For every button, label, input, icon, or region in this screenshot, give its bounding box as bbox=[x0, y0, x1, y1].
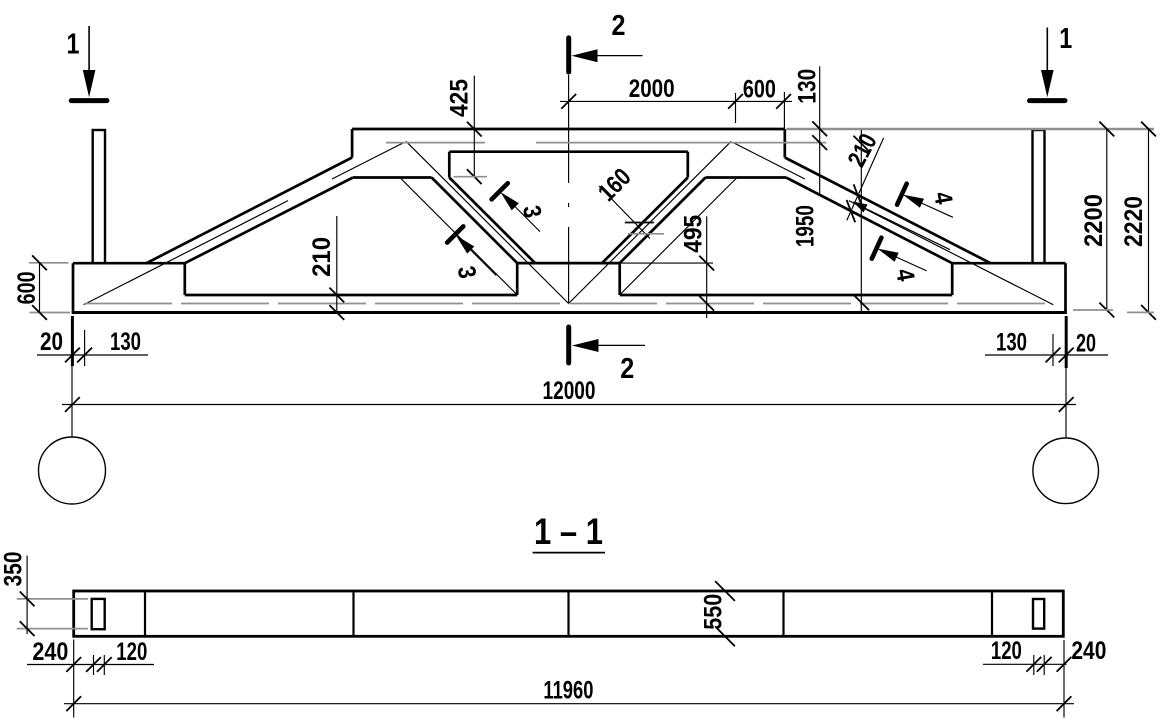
svg-text:550: 550 bbox=[700, 594, 728, 630]
svg-text:240: 240 bbox=[32, 638, 68, 666]
svg-text:1950: 1950 bbox=[792, 205, 820, 247]
svg-text:2: 2 bbox=[620, 353, 634, 385]
svg-text:130: 130 bbox=[110, 328, 141, 356]
svg-text:2000: 2000 bbox=[629, 75, 675, 103]
svg-text:350: 350 bbox=[0, 552, 28, 587]
svg-text:130: 130 bbox=[996, 329, 1027, 357]
svg-text:130: 130 bbox=[793, 69, 821, 104]
svg-text:425: 425 bbox=[446, 79, 474, 117]
svg-text:2200: 2200 bbox=[1080, 194, 1108, 247]
svg-text:120: 120 bbox=[116, 638, 147, 666]
svg-text:12000: 12000 bbox=[543, 377, 596, 405]
svg-text:120: 120 bbox=[991, 637, 1022, 665]
svg-text:600: 600 bbox=[13, 271, 41, 304]
svg-text:11960: 11960 bbox=[543, 677, 593, 705]
svg-text:1: 1 bbox=[67, 29, 80, 61]
svg-text:2: 2 bbox=[612, 10, 626, 42]
svg-text:1: 1 bbox=[1059, 23, 1072, 55]
svg-text:1 – 1: 1 – 1 bbox=[534, 511, 603, 552]
svg-text:210: 210 bbox=[308, 237, 336, 277]
svg-text:2220: 2220 bbox=[1120, 196, 1148, 247]
svg-text:600: 600 bbox=[743, 76, 776, 104]
svg-text:20: 20 bbox=[1076, 330, 1096, 358]
svg-text:495: 495 bbox=[680, 215, 708, 253]
svg-text:20: 20 bbox=[40, 328, 63, 356]
svg-text:240: 240 bbox=[1071, 637, 1106, 665]
